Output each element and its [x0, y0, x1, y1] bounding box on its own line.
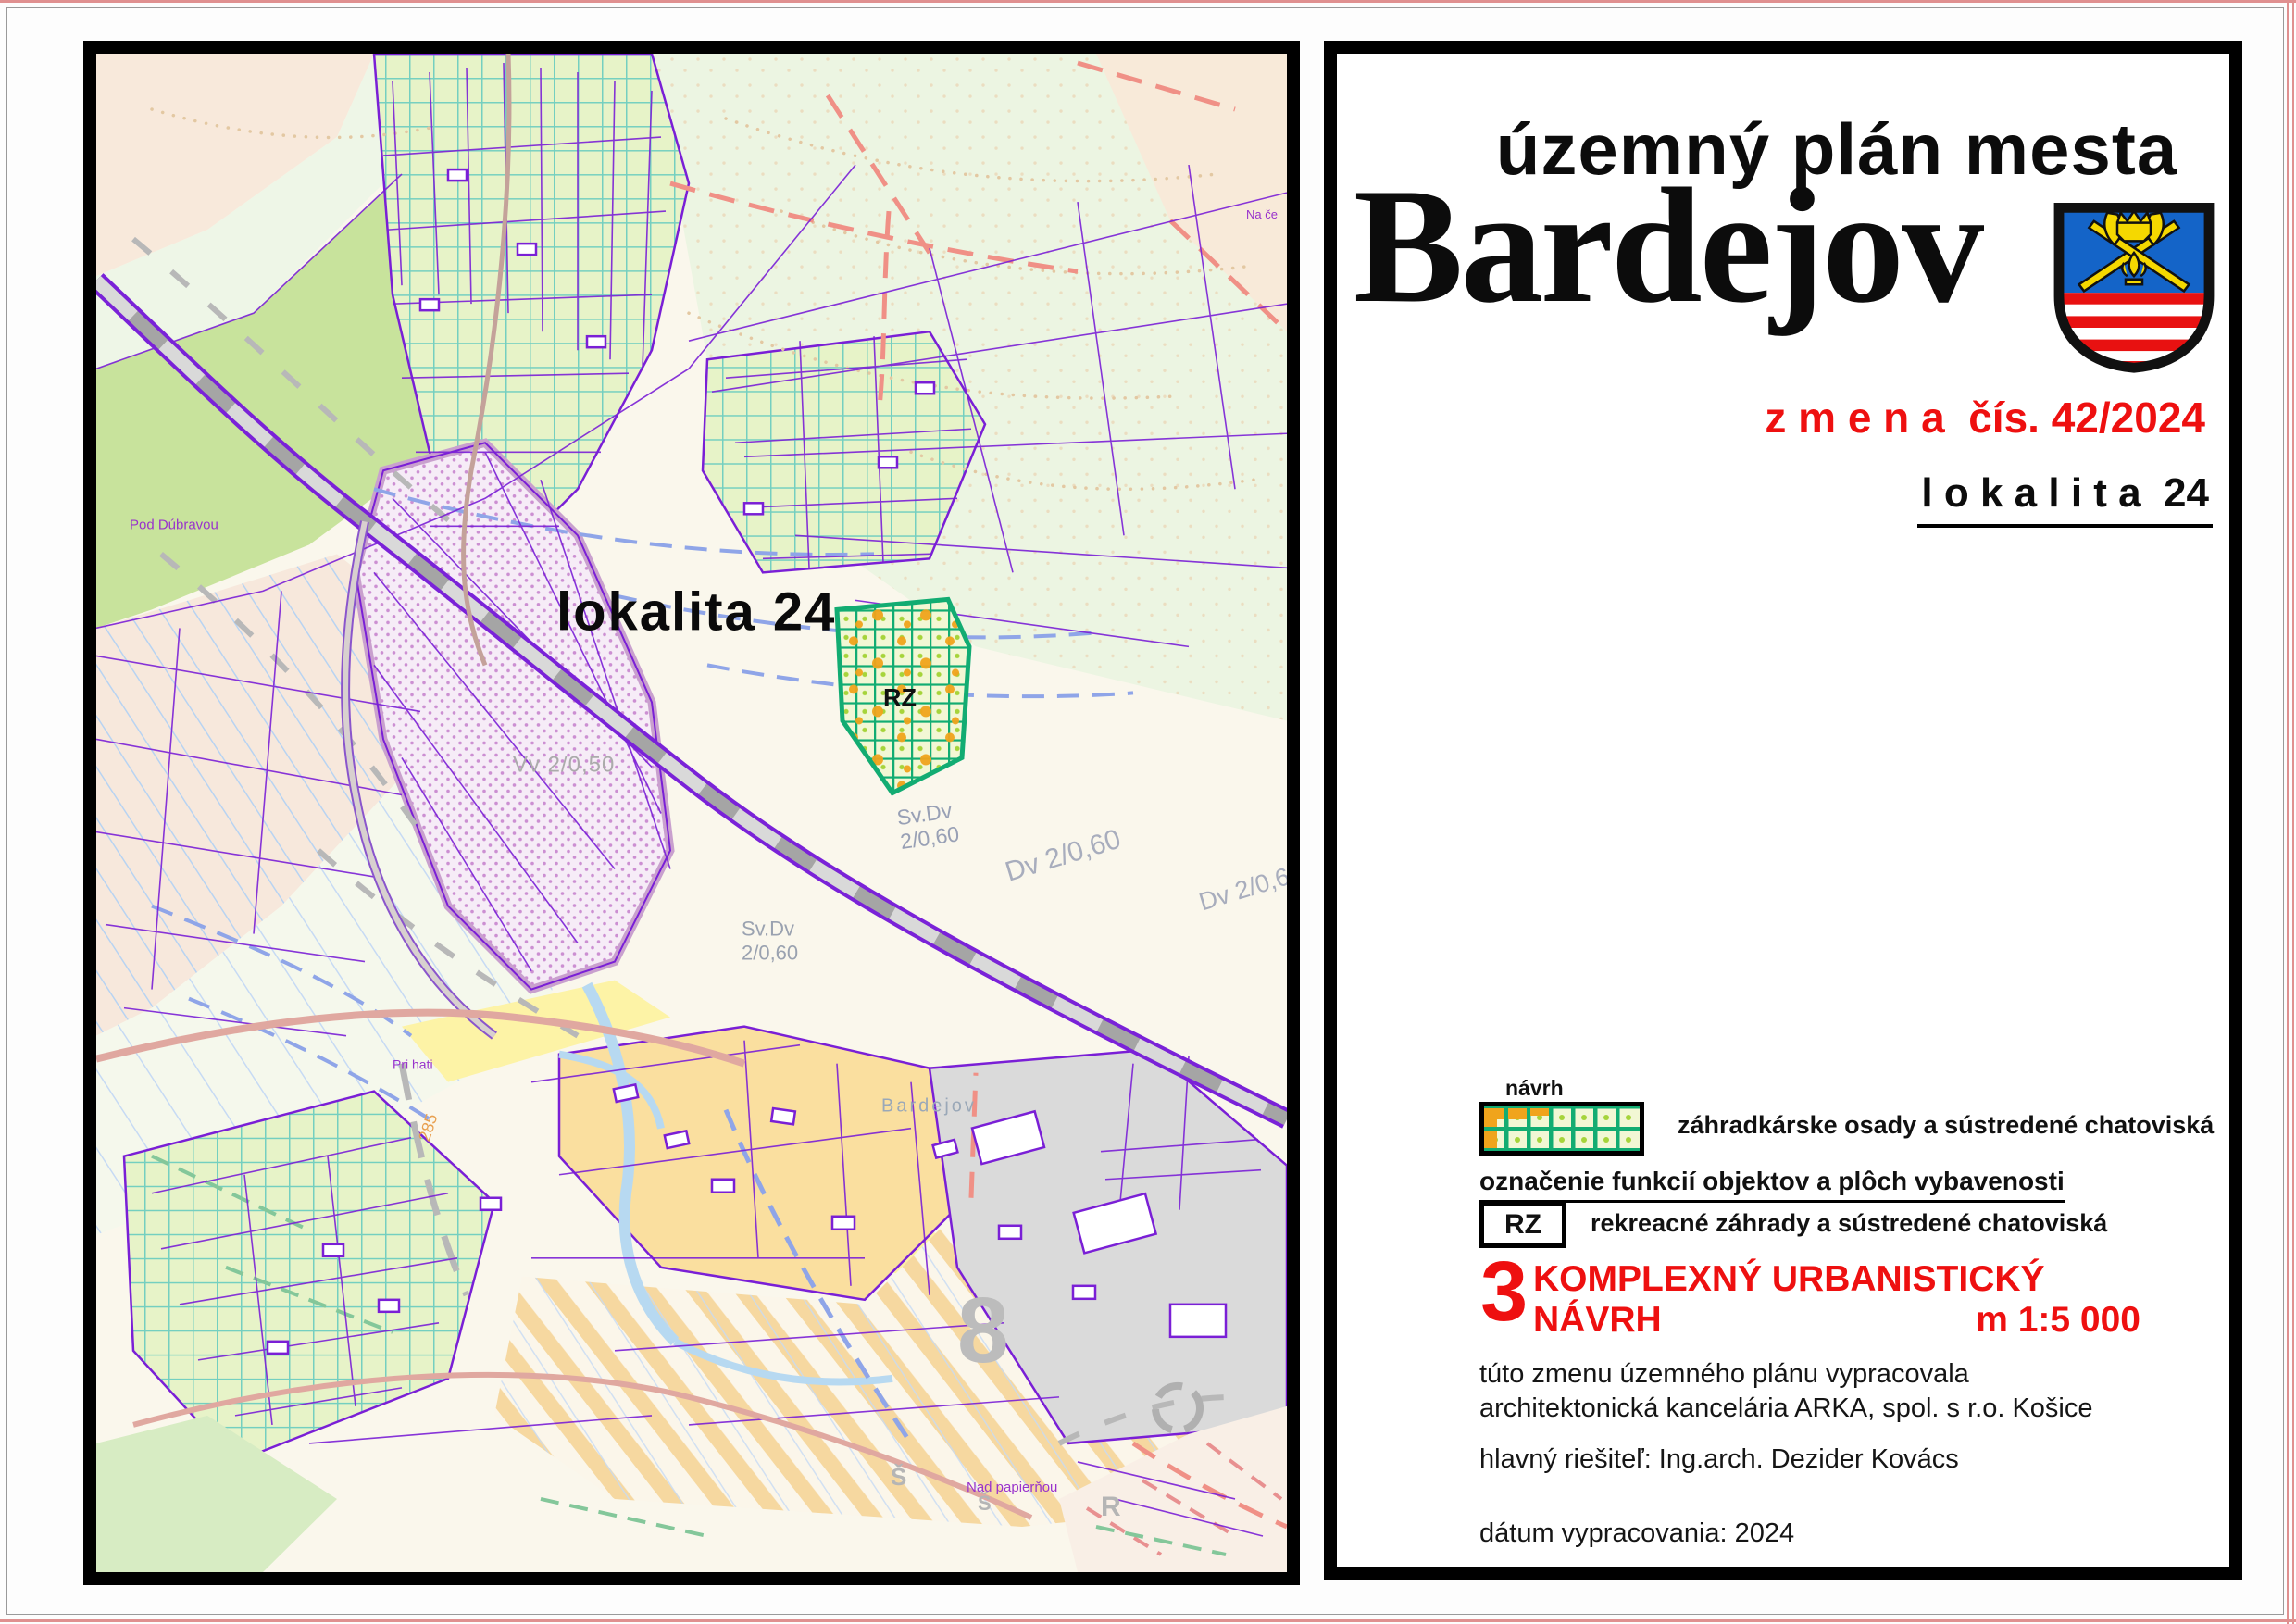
- map-label-s2: Š: [978, 1492, 992, 1515]
- map-label-pri-hati: Pri hati: [393, 1057, 433, 1072]
- credit-author-line1: túto zmenu územného plánu vypracovala: [1479, 1357, 2092, 1392]
- map-label-sector8: 8: [957, 1279, 1009, 1382]
- map-label-vv: Vv 2/0,50: [513, 752, 615, 777]
- map-label-pod-dubravou: Pod Dúbravou: [130, 517, 218, 532]
- map-label-svdv-2b: 2/0,60: [742, 942, 798, 965]
- page-edge-line: [0, 1619, 2296, 1622]
- map-label-na-ce: Na če: [1246, 207, 1278, 221]
- page-edge-line: [2292, 0, 2294, 1624]
- change-number-line: z m e n a čís. 42/2024: [1765, 393, 2205, 443]
- credit-resitel: hlavný riešiteľ: Ing.arch. Dezider Kovác…: [1479, 1444, 1959, 1475]
- credit-author-line2: architektonická kancelária ARKA, spol. s…: [1479, 1392, 2092, 1426]
- legend-navrh-label: návrh: [1505, 1076, 1564, 1101]
- credit-author: túto zmenu územného plánu vypracovala ar…: [1479, 1357, 2092, 1426]
- map-label-svdv-2: Sv.Dv 2/0,60: [742, 918, 800, 965]
- map-label-lokalita: lokalita 24: [556, 581, 836, 642]
- credit-datum: dátum vypracovania: 2024: [1479, 1518, 1794, 1549]
- legend-section-heading: označenie funkcií objektov a plôch vybav…: [1479, 1167, 2065, 1203]
- lokalita-line: l o k a l i t a 24: [1917, 470, 2213, 528]
- sheet-scale: m 1:5 000: [1533, 1300, 2140, 1341]
- page-edge-line: [0, 0, 2296, 3]
- map-label-rz: RZ: [883, 683, 917, 711]
- map-label-svdv-2a: Sv.Dv: [742, 918, 794, 941]
- legend-rz-label: rekreacné záhrady a sústredené chatovisk…: [1591, 1209, 2107, 1238]
- bardejov-coat-of-arms: [2051, 197, 2217, 375]
- legend-garden-swatch: [1479, 1102, 1644, 1156]
- zoning-map-panel[interactable]: lokalita 24 RZ Sv.Dv 2/0,60 Dv 2/0,60 Dv…: [83, 41, 1300, 1585]
- map-label-bardejov: Bardejov: [881, 1096, 977, 1117]
- legend-rz-code-box: RZ: [1479, 1202, 1566, 1248]
- legend-garden-label: záhradkárske osady a sústredené chatovis…: [1678, 1111, 2214, 1140]
- sheet-number: 3: [1480, 1254, 1528, 1330]
- title-block-panel: územný plán mesta Bardejov z m e: [1324, 41, 2242, 1580]
- map-label-r: R: [1101, 1492, 1121, 1522]
- map-label-svdv-1: Sv.Dv 2/0,60: [895, 797, 963, 854]
- garden-pattern-swatch: [1484, 1106, 1640, 1151]
- map-label-s1: Š: [891, 1463, 906, 1491]
- zoning-map: lokalita 24 RZ Sv.Dv 2/0,60 Dv 2/0,60 Dv…: [96, 54, 1287, 1572]
- page-edge-line: [2287, 0, 2289, 1624]
- city-title: Bardejov: [1354, 163, 1981, 328]
